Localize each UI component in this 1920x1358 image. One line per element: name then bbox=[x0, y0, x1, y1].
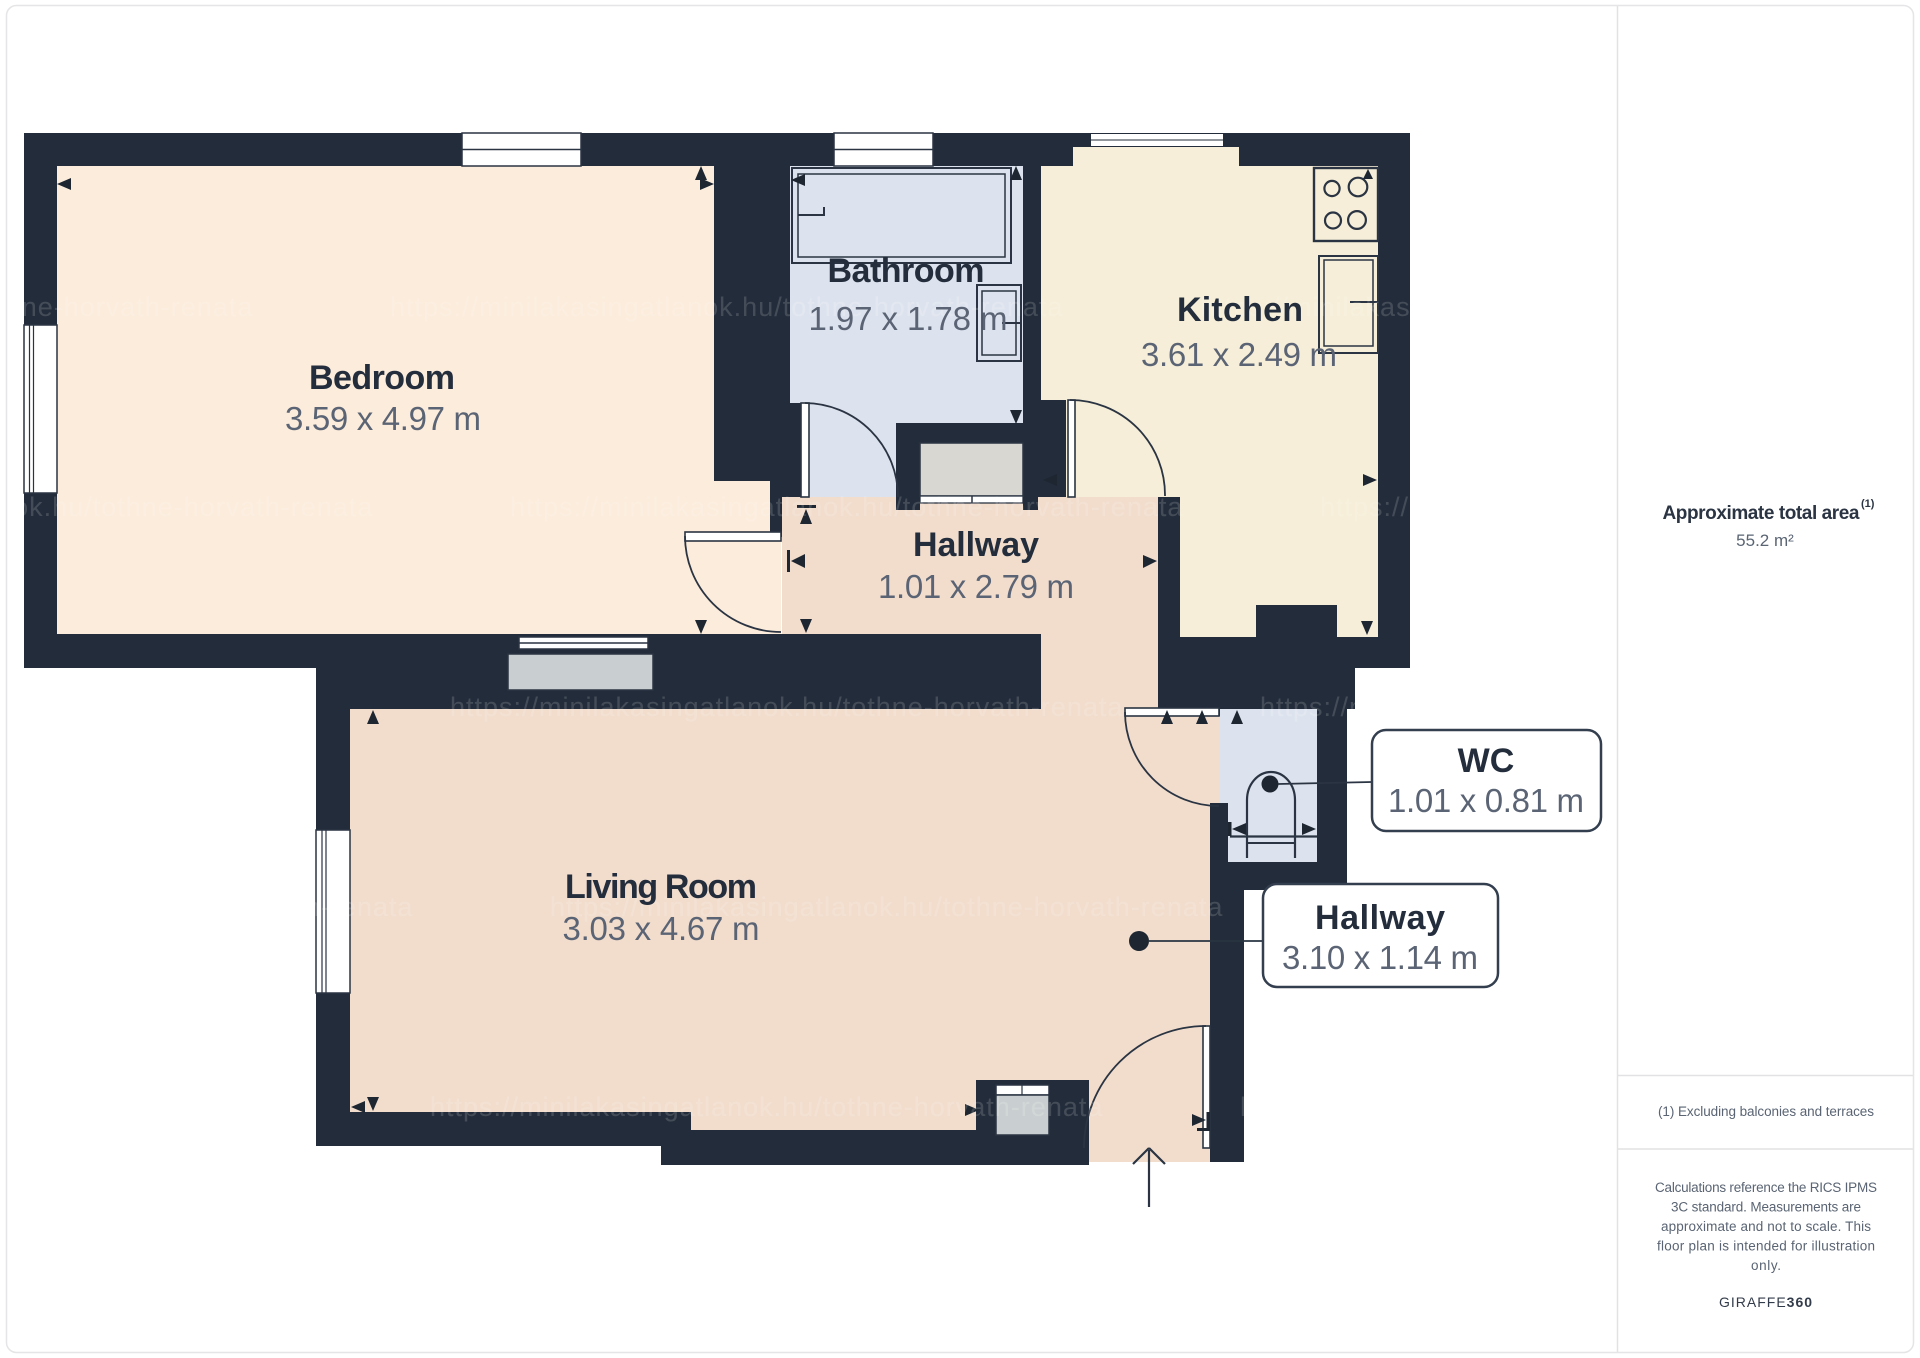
svg-text:GIRAFFE360: GIRAFFE360 bbox=[1719, 1294, 1813, 1310]
svg-text:floor plan is intended for ill: floor plan is intended for illustration bbox=[1657, 1239, 1875, 1254]
svg-text:3C standard. Measurements are: 3C standard. Measurements are bbox=[1671, 1200, 1861, 1215]
svg-text:3.10 x 1.14 m: 3.10 x 1.14 m bbox=[1282, 939, 1478, 976]
svg-text:approximate and not to scale.: approximate and not to scale. This bbox=[1661, 1219, 1871, 1234]
svg-text:only.: only. bbox=[1751, 1258, 1781, 1273]
svg-text:https://minilakasingatlanok.hu: https://minilakasingatlanok.hu/tothne-ho… bbox=[0, 1092, 293, 1122]
svg-text:Hallway: Hallway bbox=[913, 526, 1039, 564]
svg-text:3.59 x 4.97 m: 3.59 x 4.97 m bbox=[285, 400, 481, 437]
svg-text:Living Room: Living Room bbox=[565, 868, 757, 906]
svg-text:WC: WC bbox=[1458, 742, 1515, 780]
svg-text:https://minilakasingatlanok.hu: https://minilakasingatlanok.hu/tothne-ho… bbox=[0, 892, 413, 922]
svg-text:1.01 x 2.79 m: 1.01 x 2.79 m bbox=[878, 568, 1074, 605]
svg-text:https://minilakasingatlanok.hu: https://minilakasingatlanok.hu/tothne-ho… bbox=[0, 692, 313, 722]
svg-text:1.97 x 1.78 m: 1.97 x 1.78 m bbox=[809, 300, 1008, 337]
svg-text:Calculations reference the RIC: Calculations reference the RICS IPMS bbox=[1655, 1180, 1877, 1195]
svg-text:(1) Excluding balconies and te: (1) Excluding balconies and terraces bbox=[1658, 1104, 1874, 1119]
svg-text:https://minilakasingatlanok.hu: https://minilakasingatlanok.hu/tothne-ho… bbox=[0, 492, 373, 522]
svg-text:Kitchen: Kitchen bbox=[1177, 291, 1303, 329]
svg-text:https://minilakasingatlanok.hu: https://minilakasingatlanok.hu/tothne-ho… bbox=[510, 492, 1183, 522]
svg-text:https://minilakasingatlanok.hu: https://minilakasingatlanok.hu/tothne-ho… bbox=[0, 292, 253, 322]
svg-text:1.01 x 0.81 m: 1.01 x 0.81 m bbox=[1388, 782, 1584, 819]
svg-text:Bathroom: Bathroom bbox=[828, 252, 985, 290]
svg-text:Bedroom: Bedroom bbox=[309, 359, 455, 397]
svg-text:3.61 x 2.49 m: 3.61 x 2.49 m bbox=[1141, 336, 1337, 373]
svg-text:55.2 m²: 55.2 m² bbox=[1736, 531, 1794, 550]
svg-text:(1): (1) bbox=[1861, 498, 1875, 510]
svg-text:3.03 x 4.67 m: 3.03 x 4.67 m bbox=[563, 910, 760, 947]
svg-text:Approximate total area: Approximate total area bbox=[1663, 503, 1860, 524]
svg-text:https://minilakasingatlanok.hu: https://minilakasingatlanok.hu/tothne-ho… bbox=[450, 692, 1123, 722]
svg-text:Hallway: Hallway bbox=[1315, 899, 1445, 937]
svg-text:https://minilakasingatlanok.hu: https://minilakasingatlanok.hu/tothne-ho… bbox=[430, 1092, 1103, 1122]
